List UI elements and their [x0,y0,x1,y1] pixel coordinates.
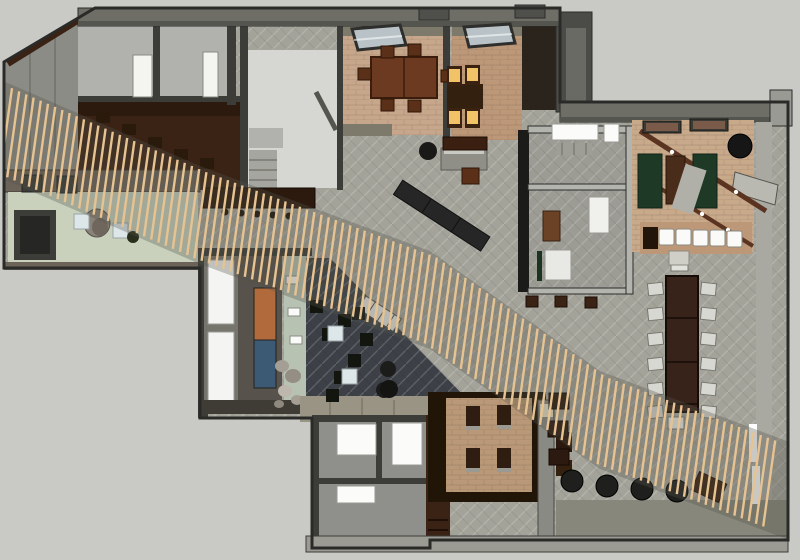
booth-table [447,84,483,109]
floor-plan-render [0,0,800,560]
wall-art-canvas [646,123,678,131]
sideboard-group [443,137,487,150]
host-stool-group [419,142,437,160]
meeting-sofa [543,211,560,241]
dining-chair [408,100,421,112]
communal-chair-left [647,307,663,321]
booth-bench [497,405,511,427]
booth-seat-cushion [467,111,478,124]
booth-bench [466,448,480,470]
communal-chair-left [647,332,663,346]
service-wall-west [240,25,248,190]
communal-head-table-group [669,251,689,265]
booth-platform-texture [446,398,532,492]
office-wall-east [227,25,236,105]
counter-white-group [552,124,598,140]
stair-shaft-inner [566,28,586,106]
office-whiteboard [133,55,152,97]
meeting-stool-group [526,296,597,308]
entry-door-inner [20,216,50,254]
dining-chair [408,44,421,56]
meeting-wall-mid [528,184,630,190]
restroom-fixture-c-group [337,486,375,503]
booth-seat-cushion [449,69,460,82]
dining-wall-stub [338,124,392,136]
communal-chair-right [700,332,716,346]
floor-cylinder-stool [561,470,583,492]
restroom-fixture-c [337,486,375,503]
games-bench-cushion [727,231,742,247]
lounge-ottoman [380,361,396,377]
restroom-fixture-b [392,423,422,465]
service-landing [249,128,283,148]
artwork-lower [254,340,276,388]
meeting-table [589,197,609,233]
dining-chair [381,99,394,111]
floor-plan-svg [0,0,800,560]
bottom-wall [306,536,788,552]
office-whiteboard-group [133,55,152,97]
counter-white-b-group [604,124,619,142]
booth-seat-cushion [467,68,478,81]
restroom-wall-v [376,420,382,480]
booth-bench-base [497,468,511,472]
green-cabinet-group [537,251,542,281]
booth-seat-cushion [449,111,460,124]
counter-white [552,124,598,140]
wall-art-canvas [693,121,725,129]
restroom-fixture-a [337,424,376,455]
shuffleboard-mat [638,154,662,208]
booth-bench-base [466,468,480,472]
office-whiteboard-b-group [203,52,218,97]
lounge-cube-stool [360,333,373,346]
tall-dark-wall [518,130,529,292]
booth-bench-base [466,426,480,430]
communal-chair-right [700,382,716,396]
entry-side-table [74,214,89,229]
dark-block [522,12,560,110]
sideboard [443,137,487,150]
display-panel-bottom [208,332,234,402]
games-bench-cushion [659,229,674,245]
meeting-daybed [545,250,571,280]
booth-bench [466,406,480,428]
wall-shelf [290,336,302,344]
communal-table [666,276,698,412]
bench-texture-block [643,227,658,249]
lounge-cube-stool [348,354,361,367]
communal-chair-left [647,357,663,371]
games-bench-cushion [710,230,725,246]
green-cabinet [537,251,542,281]
games-bench-cushion [676,229,691,245]
games-bench-cushion-group [659,229,742,247]
communal-chair-right [700,357,716,371]
lounge-round-ottoman [380,380,398,398]
booth-bench [497,448,511,470]
meeting-stool [526,296,538,307]
meeting-wall-e [626,126,633,294]
restroom-fixture-b-group [392,423,422,465]
booth-bench-base [497,425,511,429]
meeting-sofa-group [543,211,560,241]
host-stool [419,142,437,160]
bench-texture-block-group [643,227,658,249]
communal-chair-left [647,282,663,296]
storage-box [549,449,569,465]
artwork-upper [254,288,276,340]
lounge-cube-stool [326,389,339,402]
communal-chair-right [700,307,716,321]
restroom-fixture-a-group [337,424,376,455]
games-drum-light-group [728,134,752,158]
counter-white-b [604,124,619,142]
dining-chair [358,68,371,80]
lounge-table [342,369,357,384]
dining-wall-west [337,25,343,190]
restroom-wall-mid [318,478,426,484]
meeting-stool [585,297,597,308]
meeting-wall-s [528,288,632,294]
restroom-wall-n [312,415,430,422]
office-whiteboard-b [203,52,218,97]
dining-chair [381,46,394,58]
corridor-table [96,112,110,123]
meeting-stool [555,296,567,307]
meeting-daybed-group [545,250,571,280]
communal-chair-right [700,282,716,296]
games-drum-light [728,134,752,158]
lounge-table [328,326,343,341]
meeting-table-group [589,197,609,233]
wall-shelf [288,308,300,316]
floor-cylinder-stool [596,475,618,497]
host-chair [462,168,479,184]
lounge-round-ottoman-group [380,380,398,398]
office-partition-wall [153,25,160,102]
communal-head-table [669,251,689,265]
games-bench-cushion [693,230,708,246]
